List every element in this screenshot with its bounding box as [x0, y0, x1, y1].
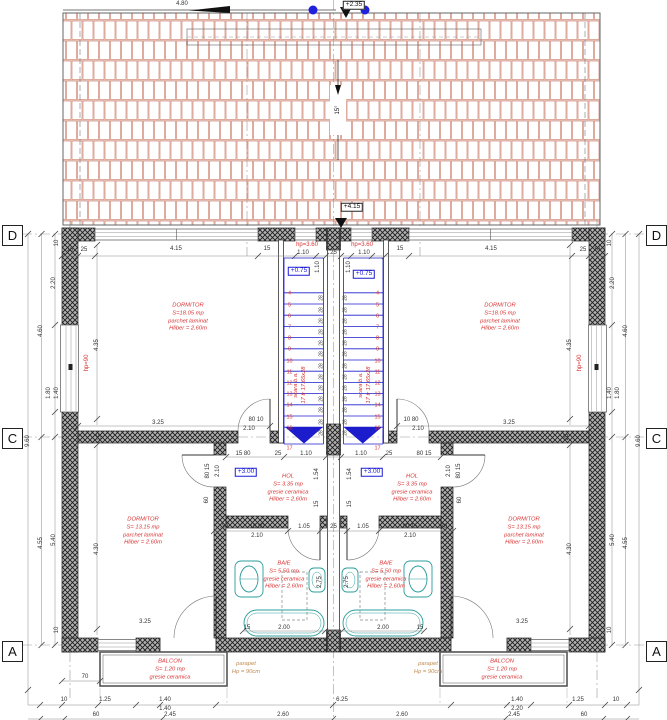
stair-step-number: 16 [374, 426, 380, 432]
dim-label: 25 [275, 451, 282, 457]
stair-step-number: 17 [374, 446, 380, 452]
dim-label: 25 [330, 250, 337, 256]
level-stair-left: +0.75 [288, 267, 310, 276]
note-stair-left: scara b.a.17 tr 17.65x28 [293, 366, 309, 403]
dim-label: 1.10 [300, 451, 312, 457]
dim-label: 25 [97, 434, 103, 441]
dim-label: 4.30 [567, 543, 573, 555]
dim-label: 4.60 [38, 325, 44, 337]
blue-dot-icon [309, 6, 318, 15]
dim-label: 2.00 [278, 625, 290, 631]
dim-label: 25 [386, 451, 393, 457]
dim-label: 4.35 [94, 339, 100, 351]
stair-step-number: 5 [288, 303, 291, 309]
riser-dim: 28 [343, 385, 348, 391]
stair-step-number: 13 [374, 392, 380, 398]
dim-label: 70 [82, 674, 89, 680]
dim-label: 2.10 [243, 426, 255, 432]
stair-step-number: 15 [374, 415, 380, 421]
dim-label: 1.25 [572, 697, 584, 703]
dim-label: .30 [439, 524, 447, 530]
dim-label: 80 10 [248, 417, 263, 423]
dim-label: 1.40 [159, 697, 171, 703]
stair-step-number: 12 [286, 381, 292, 387]
dim-label: 2.75 [317, 576, 323, 588]
plan-linework [0, 0, 667, 720]
dim-label: 2.10 [251, 533, 263, 539]
roof-plan [63, 6, 600, 229]
dim-label: 15 [264, 246, 271, 252]
stair-step-number: 6 [288, 314, 291, 320]
riser-dim: 28 [343, 329, 348, 335]
dim-label: 1.54 [347, 468, 353, 480]
dim-label: 1.40 [54, 387, 60, 399]
dim-label: 2.75 [344, 576, 350, 588]
riser-dim: 28 [343, 340, 348, 346]
riser-dim: 28 [319, 363, 324, 369]
grid-letter: C [652, 431, 661, 446]
dim-label: 25 [81, 247, 88, 253]
dim-label: 1.80 [46, 387, 52, 399]
dim-label: 1.54 [314, 468, 320, 480]
dim-label: 4.55 [623, 537, 629, 549]
dim-label: 3.25 [139, 619, 151, 625]
slope-arrow-icon [189, 6, 230, 13]
roof-slope: 15° [335, 105, 341, 114]
stair-step-number: 5 [376, 303, 379, 309]
dim-label: 3.25 [503, 420, 515, 426]
riser-dim: 28 [319, 329, 324, 335]
grid-marker-c-left: C [2, 428, 23, 449]
note-parapet-right: parapetHp = 90cm [414, 661, 442, 677]
riser-dim: 28 [343, 352, 348, 358]
riser-dim: 28 [319, 307, 324, 313]
stair-step-number: 17 [286, 446, 292, 452]
grid-marker-a-right: A [646, 641, 667, 662]
bathtub-icon [343, 610, 423, 636]
stair-step-number: 14 [374, 404, 380, 410]
level-stair-right: +0.75 [353, 270, 375, 279]
dim-label: 9.60 [25, 435, 31, 447]
dim-label: hp=90 [577, 355, 583, 372]
dim-label: 4.55 [38, 537, 44, 549]
riser-dim: 28 [319, 396, 324, 402]
dim-label: 25 [564, 434, 570, 441]
riser-dim: 28 [343, 396, 348, 402]
grid-marker-d-left: D [2, 225, 23, 246]
grid-letter: D [652, 228, 661, 243]
riser-dim: 28 [319, 374, 324, 380]
dim-label: 1.10 [358, 250, 370, 256]
stair-step-number: 4 [288, 292, 291, 298]
room-dormitor-bottom-left: DORMITORS= 13.15 mpparchet laminatHliber… [123, 516, 163, 547]
dim-label: 25 [580, 247, 587, 253]
dim-label: 1.10 [315, 261, 321, 273]
level-hol-right: +3.00 [361, 468, 383, 477]
stair-step-number: 16 [286, 426, 292, 432]
bathtub-icon [244, 610, 324, 636]
stair-step-number: 10 [374, 359, 380, 365]
note-parapet-left: parapetHp = 90cm [232, 661, 260, 677]
grid-marker-d-right: D [646, 225, 667, 246]
dim-label: 4.60 [623, 325, 629, 337]
dim-label: 1.40 [511, 697, 523, 703]
grid-letter: A [8, 644, 17, 659]
level-eave: +4.15 [341, 203, 363, 212]
dim-label: 2.60 [277, 712, 289, 718]
riser-dim: 28 [343, 408, 348, 414]
dim-label: 1.40 [607, 387, 613, 399]
dim-label: 60 [204, 497, 210, 504]
room-dormitor-top-left: DORMITORS=18.05 mpparchet laminatHliber … [168, 302, 208, 333]
stair-step-number: 9 [376, 348, 379, 354]
riser-dim: 28 [319, 318, 324, 324]
dim-label: 10 [594, 247, 601, 253]
dim-label: 3.25 [152, 420, 164, 426]
note-stair-right: scara b.a.17 tr 17.65x28 [358, 366, 374, 403]
balcony-door-opening-right [451, 639, 507, 652]
dim-label: 1.10 [355, 451, 367, 457]
room-dormitor-bottom-right: DORMITORS= 13.15 mpparchet laminatHliber… [504, 516, 544, 547]
riser-dim: 28 [319, 352, 324, 358]
dim-label: 80 15 [456, 463, 462, 478]
dim-label: 2.10 [215, 465, 221, 477]
dim-label: 6.25 [336, 697, 348, 703]
dim-label: 80 15 [205, 463, 211, 478]
stair-step-number: 4 [376, 292, 379, 298]
dim-label: 3.25 [516, 619, 528, 625]
room-hol-left: HOLS= 3.35 mpgresie ceramicaHliber = 2.6… [268, 473, 309, 504]
dim-label: 15 [347, 501, 353, 508]
dim-label: 2.10 [404, 533, 416, 539]
riser-dim: 28 [319, 296, 324, 302]
riser-dim: 28 [319, 419, 324, 425]
dim-label: 10 [607, 627, 613, 634]
dim-label: 60 [457, 497, 463, 504]
dim-label: 2.20 [51, 277, 57, 289]
level-ridge: +2.35 [343, 1, 365, 10]
room-baie-right: BAIES= 5.50 mpgresie ceramicaHliber = 2.… [366, 560, 407, 591]
dim-label: 10 80 [403, 417, 418, 423]
dim-label: 2.20 [610, 277, 616, 289]
dim-label: hp=3.60 [296, 242, 318, 248]
dim-label: 1.25 [99, 697, 111, 703]
stair-step-number: 8 [376, 336, 379, 342]
dim-label: 60 [93, 712, 100, 718]
riser-dim: 28 [319, 430, 324, 436]
dim-label: 5.40 [610, 534, 616, 546]
dim-label: 2.45 [508, 712, 520, 718]
dim-label: 2.45 [164, 712, 176, 718]
room-baie-left: BAIES= 5.50 mpgresie ceramicaHliber = 2.… [264, 560, 305, 591]
dim-label: 2.60 [396, 712, 408, 718]
dim-label: 5.40 [51, 534, 57, 546]
dim-label: 15 [244, 625, 251, 631]
stair-step-number: 11 [375, 370, 381, 376]
dim-label: 1.10 [297, 250, 309, 256]
dim-label: 25 [330, 524, 337, 530]
balcony-door-opening-left [160, 639, 216, 652]
dim-label: 2.00 [377, 625, 389, 631]
room-dormitor-top-right: DORMITORS=18.05 mpparchet laminatHliber … [480, 302, 520, 333]
dim-label: 4.80 [176, 1, 188, 7]
stair-step-number: 12 [374, 381, 380, 387]
dim-label: 2.10 [446, 465, 452, 477]
riser-dim: 28 [343, 307, 348, 313]
dim-label: 10 [61, 697, 68, 703]
riser-dim: 28 [343, 419, 348, 425]
riser-dim: 28 [343, 296, 348, 302]
dim-label: 1.05 [357, 524, 369, 530]
dim-label: 15 [397, 246, 404, 252]
dim-label: 80 15 [402, 524, 417, 530]
dim-label: 10 [613, 697, 620, 703]
dim-label: 4.35 [567, 339, 573, 351]
dim-label: 1.80 [615, 387, 621, 399]
stair-step-number: 9 [288, 348, 291, 354]
dim-label: 10 [67, 247, 74, 253]
room-balcon-left: BALCONS= 1.20 mpgresie ceramica [150, 658, 191, 681]
dim-label: 1.10 [346, 261, 352, 273]
riser-dim: 28 [343, 374, 348, 380]
grid-letter: D [8, 228, 17, 243]
stair-step-number: 7 [288, 325, 291, 331]
stair-step-number: 8 [288, 336, 291, 342]
dim-label: .30 [220, 524, 228, 530]
stair-step-number: 6 [376, 314, 379, 320]
stair-step-number: 13 [286, 392, 292, 398]
riser-dim: 28 [343, 363, 348, 369]
dim-label: 4.15 [485, 246, 497, 252]
stair-step-number: 11 [287, 370, 293, 376]
grid-letter: A [652, 644, 661, 659]
riser-dim: 28 [319, 340, 324, 346]
dim-label: 15 80 [249, 524, 264, 530]
dim-label: 60 [581, 712, 588, 718]
dim-label: 9.60 [636, 435, 642, 447]
stair-step-number: 15 [286, 415, 292, 421]
level-hol-left: +3.00 [235, 468, 257, 477]
grid-marker-a-left: A [2, 641, 23, 662]
dim-label: hp=3.60 [351, 242, 373, 248]
dim-label: hp=90 [84, 355, 90, 372]
room-hol-right: HOLS= 3.35 mpgresie ceramicaHliber = 2.6… [392, 473, 433, 504]
dim-label: 4.30 [94, 543, 100, 555]
stair-step-number: 14 [286, 404, 292, 410]
dim-label: 4.15 [170, 246, 182, 252]
dim-label: 15 [314, 501, 320, 508]
dim-label: 80 15 [416, 451, 431, 457]
grid-marker-c-right: C [646, 428, 667, 449]
riser-dim: 28 [319, 385, 324, 391]
dim-label: 15 80 [235, 451, 250, 457]
dim-label: 2.10 [412, 426, 424, 432]
dim-label: 10 [54, 627, 60, 634]
riser-dim: 28 [343, 430, 348, 436]
stair-step-number: 7 [376, 325, 379, 331]
dim-label: 15 [417, 625, 424, 631]
dim-label: 10 [54, 240, 60, 247]
dim-label: 1.05 [298, 524, 310, 530]
room-balcon-right: BALCONS= 1.20 mpgresie ceramica [482, 658, 523, 681]
riser-dim: 28 [343, 318, 348, 324]
floor-plan-drawing: D C A D C A 4.80+2.35+4.1515°hp=3.60hp=3… [0, 0, 667, 720]
dim-label: 10 [607, 240, 613, 247]
riser-dim: 28 [319, 408, 324, 414]
grid-letter: C [8, 431, 17, 446]
stair-step-number: 10 [286, 359, 292, 365]
